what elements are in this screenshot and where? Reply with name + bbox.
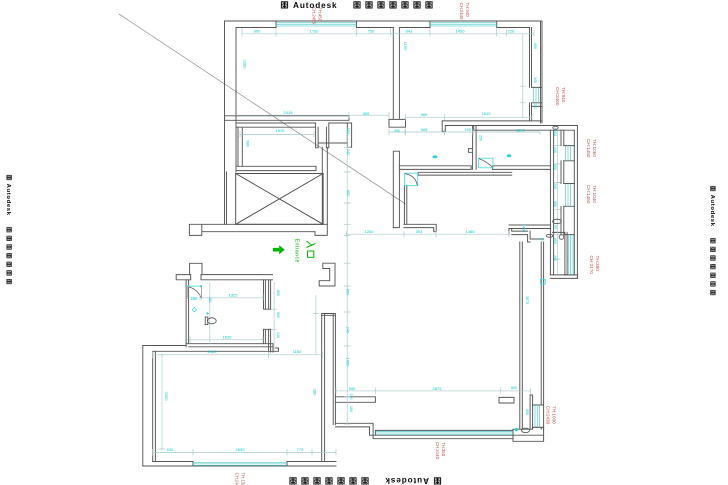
svg-text:600: 600 [511, 386, 517, 390]
svg-text:226: 226 [508, 29, 515, 34]
svg-text:TH:150: TH:150 [241, 473, 246, 485]
svg-text:240: 240 [553, 183, 557, 189]
svg-text:850: 850 [346, 190, 351, 197]
svg-text:2875: 2875 [433, 386, 443, 391]
svg-text:CH:2455: CH:2455 [312, 7, 317, 25]
svg-text:965: 965 [421, 113, 427, 117]
svg-text:1450: 1450 [522, 224, 526, 232]
svg-text:TH:1060: TH:1060 [592, 139, 597, 157]
svg-text:240: 240 [349, 394, 353, 400]
svg-text:1630: 1630 [223, 334, 233, 339]
svg-text:1290: 1290 [516, 128, 526, 133]
svg-text:650: 650 [553, 130, 557, 136]
svg-text:CH:1450: CH:1450 [586, 139, 591, 158]
svg-text:850: 850 [525, 409, 529, 415]
svg-text:2560: 2560 [208, 349, 218, 354]
svg-text:850: 850 [533, 43, 537, 49]
svg-text:3075: 3075 [525, 296, 529, 304]
svg-text:240: 240 [553, 147, 557, 153]
svg-text:TH:1030: TH:1030 [552, 406, 557, 424]
svg-text:2630: 2630 [236, 447, 246, 452]
svg-text:TH:940: TH:940 [465, 3, 470, 18]
svg-text:643: 643 [406, 29, 413, 34]
svg-text:1190: 1190 [403, 42, 408, 51]
svg-text:965: 965 [421, 127, 428, 132]
svg-text:290: 290 [191, 296, 199, 301]
svg-text:1650: 1650 [346, 358, 351, 368]
svg-text:1450: 1450 [456, 29, 466, 34]
svg-text:900: 900 [276, 312, 280, 318]
svg-text:CH:2170: CH:2170 [589, 256, 594, 275]
svg-text:150: 150 [349, 406, 353, 412]
svg-text:1365: 1365 [466, 229, 476, 234]
svg-text:240: 240 [553, 255, 557, 261]
svg-text:240: 240 [346, 149, 351, 156]
svg-text:900: 900 [254, 29, 261, 34]
svg-text:Entrance: Entrance [294, 239, 300, 263]
svg-text:1325: 1325 [229, 292, 239, 297]
svg-text:3350: 3350 [164, 392, 169, 402]
svg-text:380: 380 [313, 389, 318, 396]
svg-text:CH:1450: CH:1450 [586, 185, 591, 204]
svg-text:TH:450: TH:450 [318, 7, 323, 22]
svg-text:3380: 3380 [243, 60, 248, 70]
svg-text:240: 240 [276, 332, 280, 338]
svg-text:850: 850 [553, 238, 557, 244]
svg-text:CH:2460: CH:2460 [555, 87, 560, 106]
svg-text:TH:940: TH:940 [561, 87, 566, 103]
svg-text:1250: 1250 [365, 229, 375, 234]
svg-text:380: 380 [208, 297, 212, 303]
svg-text:850: 850 [346, 289, 351, 296]
svg-text:150: 150 [346, 128, 351, 135]
svg-text:303: 303 [416, 229, 423, 234]
svg-text:750: 750 [368, 29, 375, 34]
svg-text:150: 150 [479, 135, 483, 141]
svg-text:1975: 1975 [276, 128, 286, 133]
svg-text:CH:2445: CH:2445 [459, 3, 464, 21]
svg-text:CH:2140: CH:2140 [435, 442, 440, 460]
svg-text:340: 340 [533, 77, 537, 83]
svg-text:850: 850 [553, 164, 557, 170]
svg-text:1150: 1150 [293, 349, 302, 354]
svg-text:34: 34 [554, 225, 558, 229]
svg-text:850: 850 [276, 290, 280, 296]
svg-text:1610: 1610 [482, 111, 492, 116]
svg-text:1750: 1750 [310, 29, 320, 34]
svg-text:850: 850 [553, 201, 557, 207]
svg-text:380: 380 [246, 140, 251, 147]
svg-text:630: 630 [167, 447, 174, 452]
svg-text:TH:1040: TH:1040 [592, 185, 597, 203]
svg-text:TH:380: TH:380 [595, 256, 600, 272]
svg-text:770: 770 [297, 447, 304, 452]
svg-text:240: 240 [346, 327, 351, 334]
svg-text:390: 390 [394, 129, 400, 133]
svg-text:CH:2440: CH:2440 [235, 473, 240, 485]
svg-text:955: 955 [363, 111, 370, 116]
svg-text:TH:350: TH:350 [441, 442, 446, 457]
svg-text:190: 190 [464, 127, 471, 132]
svg-text:150: 150 [533, 103, 537, 109]
svg-text:CH:2430: CH:2430 [546, 406, 551, 425]
svg-text:2415: 2415 [284, 110, 294, 115]
svg-text:900: 900 [349, 386, 356, 391]
svg-text:05: 05 [540, 238, 544, 242]
